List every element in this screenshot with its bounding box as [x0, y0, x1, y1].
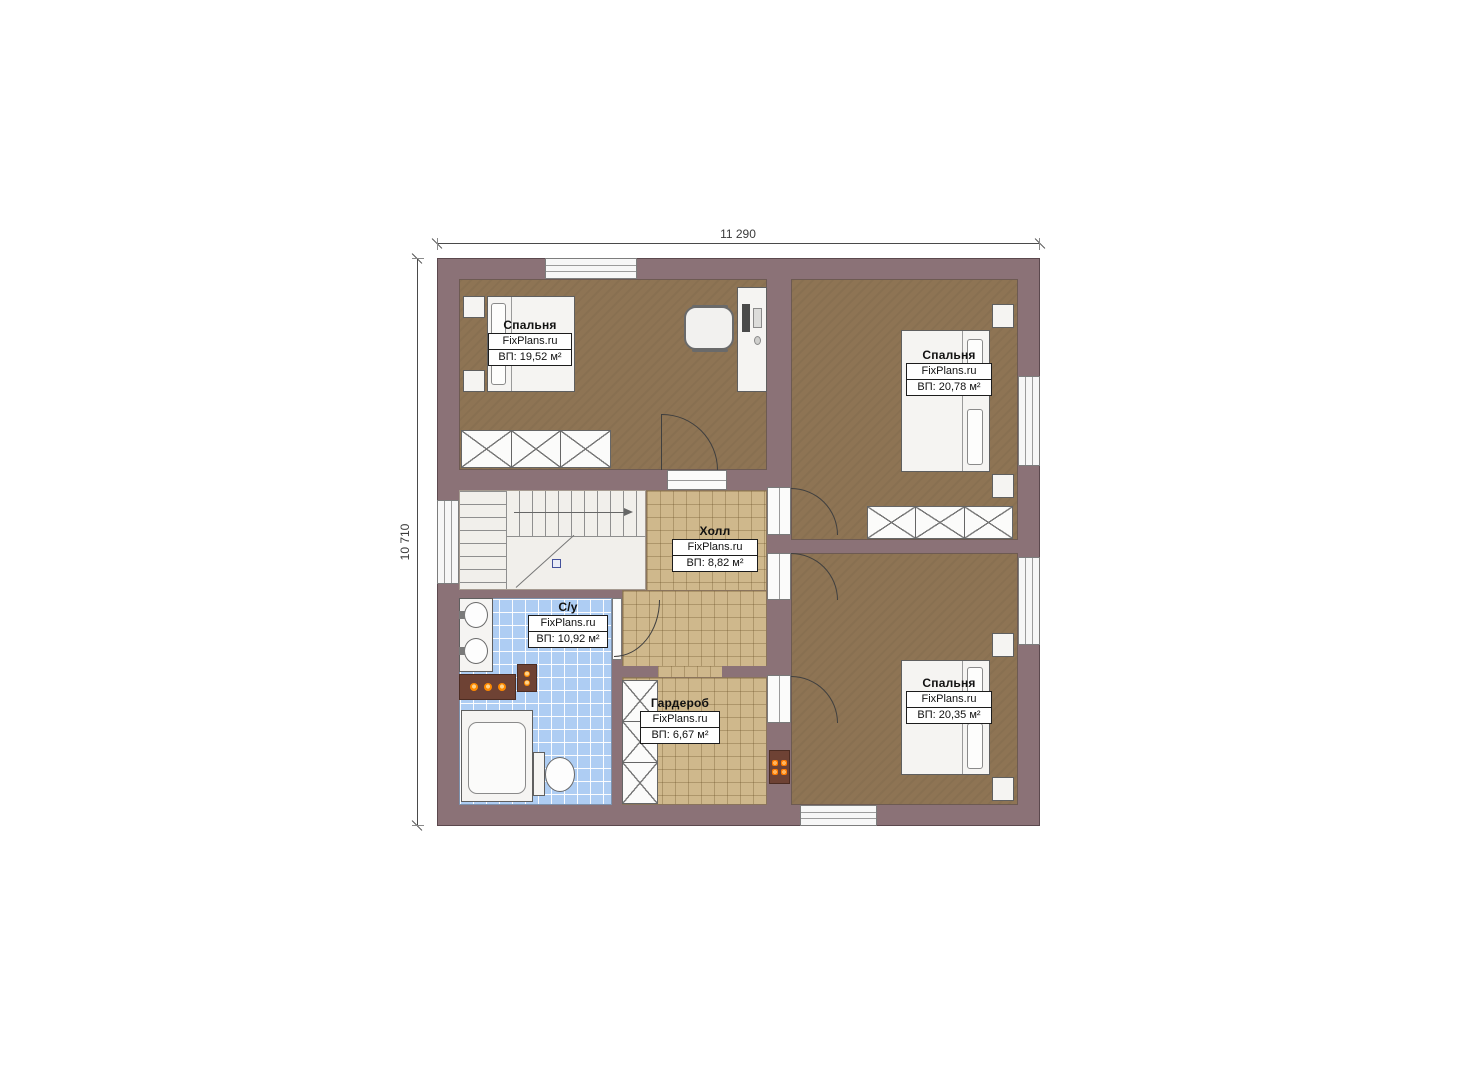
sauna-heater	[459, 674, 516, 700]
office-chair	[684, 306, 734, 350]
room-name: С/у	[528, 600, 608, 614]
window-glass	[1025, 377, 1032, 465]
sink-basin	[464, 638, 488, 664]
window-bottom-bedroom-br	[800, 805, 877, 826]
staircase	[459, 490, 646, 590]
room-label-bedroom-tl: Спальня FixPlans.ru ВП: 19,52 м²	[488, 318, 572, 366]
wall-below-bedroom-tl-a	[459, 470, 667, 490]
room-area: ВП: 6,67 м²	[641, 728, 719, 743]
window-glass	[546, 265, 636, 272]
dimension-line-top	[437, 243, 1040, 244]
door-jamb-bedroom-br-wardrobe	[767, 675, 791, 723]
mouse-icon	[754, 336, 761, 345]
wardrobe-closet	[867, 506, 1013, 539]
wall-bathroom-right	[612, 658, 622, 805]
room-name: Холл	[672, 524, 758, 538]
faucet-icon	[459, 611, 465, 619]
stair-treads-left	[460, 491, 507, 589]
nightstand	[992, 633, 1014, 657]
floor-plan-canvas: Спальня FixPlans.ru ВП: 19,52 м² Спальня…	[0, 0, 1474, 1080]
dimension-extension	[412, 825, 424, 826]
door-jamb-bedroom-br-hall	[767, 553, 791, 600]
room-name: Спальня	[906, 676, 992, 690]
room-area: ВП: 20,35 м²	[907, 708, 991, 723]
window-right-bedroom-br	[1018, 557, 1040, 645]
window-glass	[1025, 558, 1032, 644]
room-name: Спальня	[906, 348, 992, 362]
room-brand: FixPlans.ru	[529, 616, 607, 632]
window-right-bedroom-tr	[1018, 376, 1040, 466]
window-glass	[801, 812, 876, 819]
dimension-extension	[437, 238, 438, 250]
dimension-line-left	[417, 258, 418, 826]
wardrobe-closet	[461, 430, 611, 468]
dimension-extension	[412, 258, 424, 259]
room-label-bedroom-tr: Спальня FixPlans.ru ВП: 20,78 м²	[906, 348, 992, 396]
wall-center-vertical-c	[767, 600, 791, 675]
stair-break-line	[516, 535, 575, 588]
room-area: ВП: 8,82 м²	[673, 556, 757, 571]
faucet-icon	[459, 647, 465, 655]
nightstand	[463, 296, 485, 318]
sink-basin	[464, 602, 488, 628]
dimension-extension	[1039, 238, 1040, 250]
nightstand	[992, 474, 1014, 498]
window-glass	[444, 501, 451, 583]
wall-right-rooms-divider	[791, 540, 1018, 553]
room-brand: FixPlans.ru	[641, 712, 719, 728]
room-area: ВП: 10,92 м²	[529, 632, 607, 647]
radiator	[769, 750, 790, 784]
door-threshold-bedroom-tl	[667, 470, 727, 490]
stair-arrow-icon	[624, 508, 633, 516]
nightstand	[992, 777, 1014, 801]
room-area: ВП: 19,52 м²	[489, 350, 571, 365]
room-name: Гардероб	[640, 696, 720, 710]
wall-wardrobe-top-left	[612, 666, 658, 677]
dimension-height-label: 10 710	[398, 512, 412, 572]
room-name: Спальня	[488, 318, 572, 332]
window-top	[545, 258, 637, 279]
monitor-icon	[742, 304, 750, 332]
stair-marker	[552, 559, 561, 568]
wall-center-vertical-b	[767, 535, 791, 553]
room-brand: FixPlans.ru	[489, 334, 571, 350]
room-brand: FixPlans.ru	[673, 540, 757, 556]
nightstand	[992, 304, 1014, 328]
wall-wardrobe-top-right	[722, 666, 767, 677]
room-label-hall: Холл FixPlans.ru ВП: 8,82 м²	[672, 524, 758, 572]
room-label-bathroom: С/у FixPlans.ru ВП: 10,92 м²	[528, 600, 608, 648]
wall-bathroom-top	[459, 590, 612, 598]
door-jamb-bedroom-tr	[767, 487, 791, 535]
wall-center-vertical-a	[767, 279, 791, 487]
door-leaf-bedroom-tl	[661, 414, 662, 470]
room-label-bedroom-br: Спальня FixPlans.ru ВП: 20,35 м²	[906, 676, 992, 724]
room-area: ВП: 20,78 м²	[907, 380, 991, 395]
shower-cabin	[461, 710, 533, 802]
wall-below-bedroom-tl-b	[727, 470, 767, 490]
stove	[517, 664, 537, 692]
room-label-wardrobe: Гардероб FixPlans.ru ВП: 6,67 м²	[640, 696, 720, 744]
toilet-tank	[533, 752, 545, 796]
window-left-stairs	[437, 500, 459, 584]
room-brand: FixPlans.ru	[907, 692, 991, 708]
desk	[737, 287, 767, 392]
stair-direction-line	[514, 512, 626, 513]
room-brand: FixPlans.ru	[907, 364, 991, 380]
toilet-bowl	[545, 757, 575, 792]
keyboard-icon	[753, 308, 762, 328]
nightstand	[463, 370, 485, 392]
dimension-width-label: 11 290	[688, 227, 788, 241]
